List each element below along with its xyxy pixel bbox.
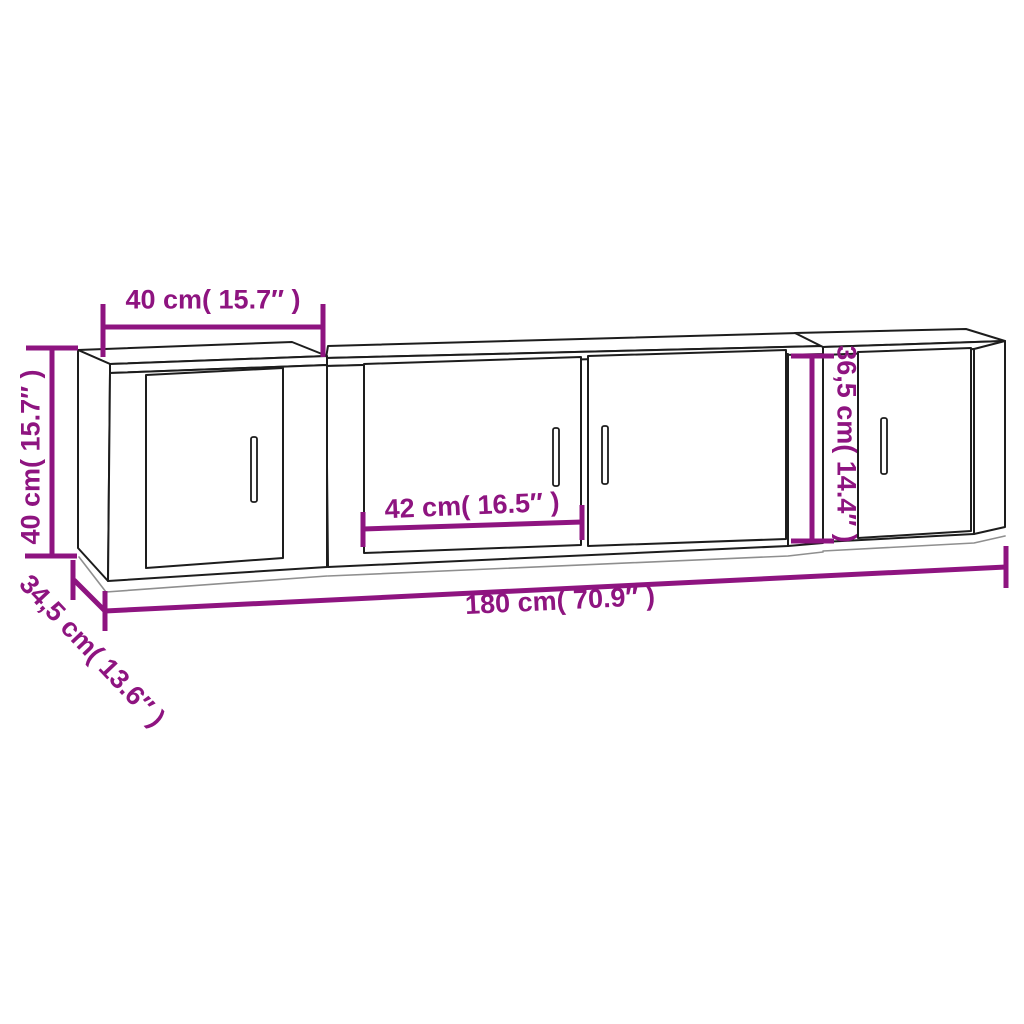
door-handle-icon [602,426,608,484]
dimension-label-left-height: 40 cm( 15.7″ ) [18,369,45,544]
left-cabinet-door [146,368,283,568]
center-cabinet-right-door [588,350,786,546]
right-cabinet [795,329,1005,551]
center-cabinet [326,333,823,576]
dimension-label-top-width: 40 cm( 15.7″ ) [125,287,300,314]
left-cabinet [78,342,327,592]
right-cabinet-door [858,348,971,538]
dimension-label-right-height: 36,5 cm( 14.4″ ) [833,345,860,543]
door-handle-icon [553,428,559,486]
right-cabinet-side-panel [974,341,1005,534]
door-handle-icon [881,418,887,474]
door-handle-icon [251,437,257,502]
product-dimension-diagram: 40 cm( 15.7″ ) 40 cm( 15.7″ ) 42 cm( 16.… [0,0,1024,1024]
left-cabinet-side-panel [78,350,110,581]
